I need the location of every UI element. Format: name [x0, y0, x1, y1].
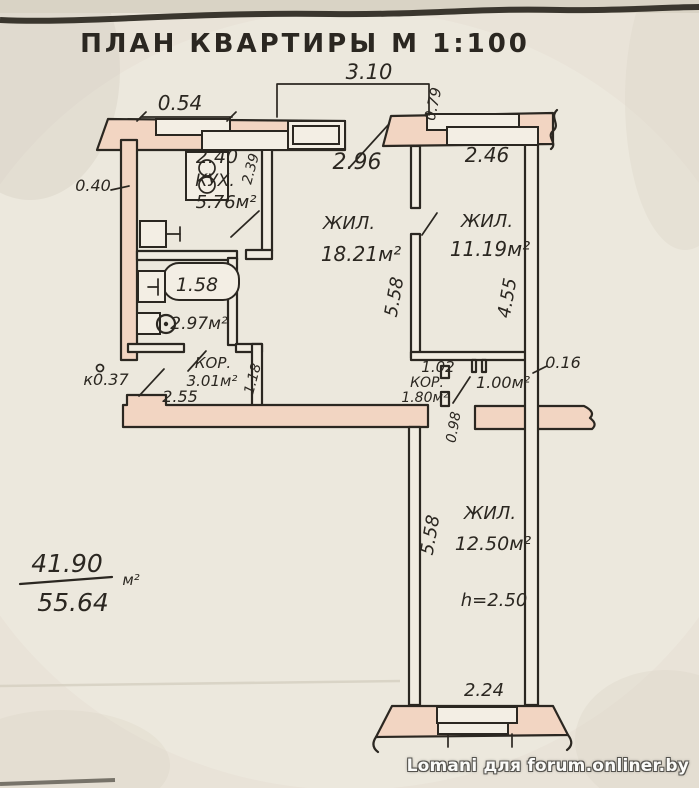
living2-label: ЖИЛ.: [460, 211, 513, 232]
door-jamb-1: [472, 360, 476, 372]
paper-texture: [0, 0, 699, 788]
wall-kitchen-stub: [246, 250, 272, 259]
total-living-area: 41.90: [31, 549, 103, 578]
living2-area: 11.19м²: [450, 237, 530, 261]
dim-2-24: 2.24: [464, 680, 504, 701]
scanned-floorplan-page: ПЛАН КВАРТИРЫ М 1:1003.100.790.542.402.3…: [0, 0, 699, 788]
entry-mark-0-37: к0.37: [83, 370, 129, 389]
ceiling-height: h=2.50: [461, 590, 528, 611]
wall-kitchen-right: [262, 146, 272, 251]
total-area: 55.64: [37, 588, 109, 617]
room3-window-outer: [437, 707, 517, 723]
dim-0-54: 0.54: [158, 91, 203, 115]
bathroom-area: 2.97м²: [170, 314, 228, 334]
floorplan-drawing: ПЛАН КВАРТИРЫ М 1:1003.100.790.542.402.3…: [0, 0, 699, 788]
wall-bath-top: [137, 251, 237, 260]
room3-window-sill: [438, 723, 508, 734]
hall-label: КОР.: [195, 354, 231, 372]
wall-bath-bottom: [128, 344, 184, 352]
kitchen-label: КУХ.: [195, 171, 234, 191]
closet-area: 1.00м²: [476, 373, 531, 392]
corridor-area: 1.80м²: [401, 390, 449, 406]
dim-balcony-3-10: 3.10: [346, 60, 393, 84]
living3-label: ЖИЛ.: [463, 503, 516, 524]
dim-0-40: 0.40: [75, 176, 111, 195]
photo-watermark: Lomani для forum.onliner.by: [407, 756, 689, 776]
corridor-label: КОР.: [410, 375, 444, 391]
plan-title: ПЛАН КВАРТИРЫ М 1:100: [80, 29, 530, 59]
bathtub-dim-1-58: 1.58: [176, 274, 218, 296]
dim-kitchen-2-40: 2.40: [196, 146, 238, 168]
dim-2-96: 2.96: [333, 150, 382, 175]
balcony-door-left-inner: [293, 126, 339, 144]
area-unit: м²: [122, 571, 139, 589]
wall-room3-left: [409, 427, 420, 705]
wall-left-outer: [121, 140, 137, 360]
dim-1-02: 1.02: [421, 358, 454, 376]
wall-right-outer: [525, 144, 538, 705]
kitchen-sink: [140, 221, 166, 247]
wall-between-rooms-lower: [411, 234, 420, 358]
living1-area: 18.21м²: [321, 242, 401, 266]
toilet-bowl-dot: [164, 322, 168, 326]
door-jamb-2: [482, 360, 486, 372]
dim-2-55: 2.55: [162, 387, 198, 406]
living3-area: 12.50м²: [455, 533, 532, 555]
living1-label: ЖИЛ.: [322, 213, 375, 234]
dim-0-16: 0.16: [545, 353, 581, 372]
wall-between-rooms-upper: [411, 146, 420, 208]
kitchen-area: 5.76м²: [196, 192, 257, 213]
dim-2-46: 2.46: [465, 143, 510, 167]
